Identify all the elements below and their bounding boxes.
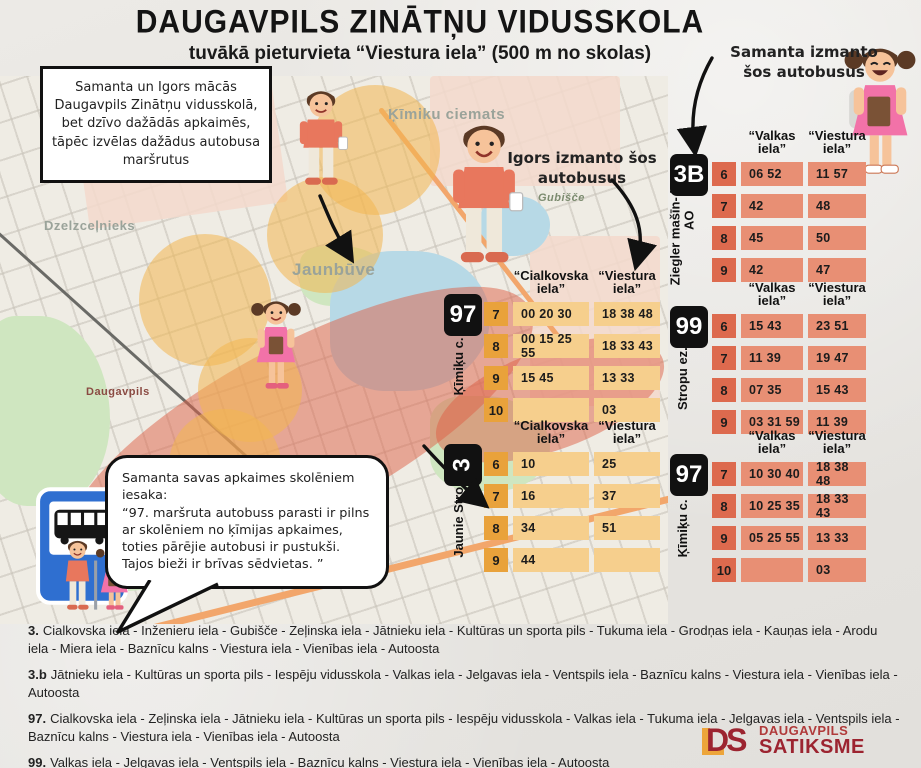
infographic-canvas: Ķīmiku ciemats Jaunbūve Dzelzceļnieks Da…: [0, 0, 921, 768]
times-cell: 00 15 25 55: [513, 334, 589, 358]
times-cell: 19 47: [808, 346, 866, 370]
times-cell: 15 45: [513, 366, 589, 390]
header: DAUGAVPILS ZINĀTŅU VIDUSSKOLA tuvākā pie…: [120, 6, 720, 65]
bubble-line1: Samanta savas apkaimes skolēniem iesaka:: [122, 470, 372, 505]
times-cell: 06 52: [741, 162, 803, 186]
hour-cell: 9: [484, 548, 508, 572]
times-cell: 42: [741, 194, 803, 218]
route-number: 97.: [28, 711, 46, 726]
timetable-row: 9 44: [484, 548, 660, 572]
igors-character: [438, 118, 530, 270]
times-cell: 15 43: [808, 378, 866, 402]
hour-cell: 8: [484, 334, 508, 358]
daugavpils-satiksme-logo: DS DAUGAVPILS SATIKSME: [698, 720, 865, 760]
page-subtitle: tuvākā pieturvieta “Viestura iela” (500 …: [120, 43, 720, 65]
times-cell: 37: [594, 484, 660, 508]
route-number: 99: [676, 313, 703, 341]
hour-cell: 7: [484, 302, 508, 326]
arrow-samanta-to-tables: [693, 58, 712, 144]
times-cell: 11 57: [808, 162, 866, 186]
times-cell: 18 38 48: [808, 462, 866, 486]
timetable-97-kimiku-red: 97 Ķīmiķu c. - AO “Valkas iela” “Viestur…: [712, 426, 866, 590]
times-cell: 23 51: [808, 314, 866, 338]
timetable-row: 6 10 25: [484, 452, 660, 476]
hour-cell: 8: [712, 378, 736, 402]
times-cell: 05 25 55: [741, 526, 803, 550]
column-header-viestura: “Viestura iela”: [808, 278, 866, 308]
hour-cell: 8: [712, 226, 736, 250]
timetable-row: 9 05 25 55 13 33: [712, 526, 866, 550]
times-cell: 34: [513, 516, 589, 540]
times-cell: 10 30 40: [741, 462, 803, 486]
route-number: 3: [449, 458, 477, 471]
hour-cell: 7: [712, 194, 736, 218]
route-number: 3.: [28, 623, 39, 638]
timetable-row: 7 16 37: [484, 484, 660, 508]
route-number: 97: [450, 301, 477, 329]
timetable-3-jaunie-stropi: 3 Jaunie Stropi - AO “Cialkovska iela” “…: [484, 416, 660, 580]
route-badge-97: 97: [670, 454, 708, 496]
bubble-tail: [108, 580, 238, 638]
logo-line1: DAUGAVPILS: [759, 724, 865, 737]
route-badge-3: 3: [444, 444, 482, 486]
intro-text-box: Samanta un Igors mācās Daugavpils Zinātņ…: [40, 66, 272, 183]
bubble-line2: “97. maršruta autobuss parasti ir pilns …: [122, 505, 372, 574]
column-header-valkas: “Valkas iela”: [741, 426, 803, 456]
timetable-row: 7 00 20 30 18 38 48: [484, 302, 660, 326]
timetable-3b-ziegler: 3B Ziegler mašīn- būve - AO “Valkas iela…: [712, 126, 866, 290]
svg-text:DS: DS: [706, 722, 747, 758]
map-label-jaunbuve: Jaunbūve: [292, 260, 375, 280]
route-badge-97: 97: [444, 294, 482, 336]
times-cell: 11 39: [741, 346, 803, 370]
times-cell: 44: [513, 548, 589, 572]
times-cell: 10: [513, 452, 589, 476]
times-cell: 18 38 48: [594, 302, 660, 326]
hour-cell: 7: [484, 484, 508, 508]
times-cell: 13 33: [594, 366, 660, 390]
column-header-valkas: “Valkas iela”: [741, 278, 803, 308]
column-header-viestura: “Viestura iela”: [594, 266, 660, 296]
route-number: 97: [676, 461, 703, 489]
hour-cell: 8: [712, 494, 736, 518]
timetable-row: 6 06 52 11 57: [712, 162, 866, 186]
times-cell: 03: [808, 558, 866, 582]
map-label-daugavpils: Daugavpils: [86, 386, 150, 398]
hour-cell: 9: [484, 366, 508, 390]
column-header-viestura: “Viestura iela”: [594, 416, 660, 446]
times-cell: 10 25 35: [741, 494, 803, 518]
route-number: 99.: [28, 755, 46, 768]
logo-monogram-icon: DS: [698, 720, 754, 760]
boy-character-on-map: [290, 86, 352, 190]
hour-cell: 7: [712, 346, 736, 370]
hour-cell: 6: [712, 162, 736, 186]
timetable-row: 8 34 51: [484, 516, 660, 540]
hour-cell: 9: [712, 526, 736, 550]
times-cell: 13 33: [808, 526, 866, 550]
map-park: [0, 316, 110, 506]
column-header-valkas: “Valkas iela”: [741, 126, 803, 156]
route-stops: Jātnieku iela - Kultūras un sporta pils …: [28, 667, 898, 700]
timetable-row: 6 15 43 23 51: [712, 314, 866, 338]
timetable-row: 8 45 50: [712, 226, 866, 250]
girl-character-on-map: [248, 295, 304, 391]
timetable-97-kimiku-yellow: 97 Ķīmiķu c. - AO “Cialkovska iela” “Vie…: [484, 266, 660, 430]
route-badge-99: 99: [670, 306, 708, 348]
column-header-viestura: “Viestura iela”: [808, 426, 866, 456]
times-cell: 18 33 43: [594, 334, 660, 358]
times-cell: 16: [513, 484, 589, 508]
timetable-row: 7 11 39 19 47: [712, 346, 866, 370]
page-title: DAUGAVPILS ZINĀTŅU VIDUSSKOLA: [120, 5, 720, 42]
times-cell: [741, 558, 803, 582]
route-number: 3B: [674, 161, 705, 189]
hour-cell: 6: [484, 452, 508, 476]
column-header-cialkovska: “Cialkovska iela”: [513, 416, 589, 446]
timetable-row: 8 10 25 35 18 33 43: [712, 494, 866, 518]
map-label-dzelzcelnieks: Dzelzceļnieks: [44, 218, 135, 233]
times-cell: 25: [594, 452, 660, 476]
times-cell: 45: [741, 226, 803, 250]
hour-cell: 6: [712, 314, 736, 338]
samanta-advice-bubble: Samanta savas apkaimes skolēniem iesaka:…: [105, 455, 389, 589]
timetable-99-stropu: 99 Stropu ez.- AO “Valkas iela” “Viestur…: [712, 278, 866, 442]
times-cell: 48: [808, 194, 866, 218]
logo-line2: SATIKSME: [759, 737, 865, 757]
route-badge-3b: 3B: [670, 154, 708, 196]
timetable-row: 7 42 48: [712, 194, 866, 218]
times-cell: 15 43: [741, 314, 803, 338]
timetable-row: 8 00 15 25 55 18 33 43: [484, 334, 660, 358]
timetable-row: 7 10 30 40 18 38 48: [712, 462, 866, 486]
times-cell: 00 20 30: [513, 302, 589, 326]
times-cell: 18 33 43: [808, 494, 866, 518]
timetable-row: 10 03: [712, 558, 866, 582]
samanta-buses-label: Samanta izmanto šos autobusus: [714, 42, 894, 83]
igors-buses-label: Igors izmanto šos autobusus: [492, 148, 672, 189]
route-stops: Valkas iela - Jelgavas iela - Ventspils …: [50, 755, 609, 768]
hour-cell: 7: [712, 462, 736, 486]
timetable-row: 8 07 35 15 43: [712, 378, 866, 402]
column-header-cialkovska: “Cialkovska iela”: [513, 266, 589, 296]
timetable-row: 9 15 45 13 33: [484, 366, 660, 390]
map-label-gubisce: Gubišče: [538, 192, 585, 204]
times-cell: 50: [808, 226, 866, 250]
times-cell: 07 35: [741, 378, 803, 402]
times-cell: 51: [594, 516, 660, 540]
column-header-viestura: “Viestura iela”: [808, 126, 866, 156]
route-3b-description: 3.bJātnieku iela - Kultūras un sporta pi…: [28, 666, 900, 703]
hour-cell: 10: [712, 558, 736, 582]
route-number: 3.b: [28, 667, 47, 682]
times-cell: [594, 548, 660, 572]
hour-cell: 8: [484, 516, 508, 540]
